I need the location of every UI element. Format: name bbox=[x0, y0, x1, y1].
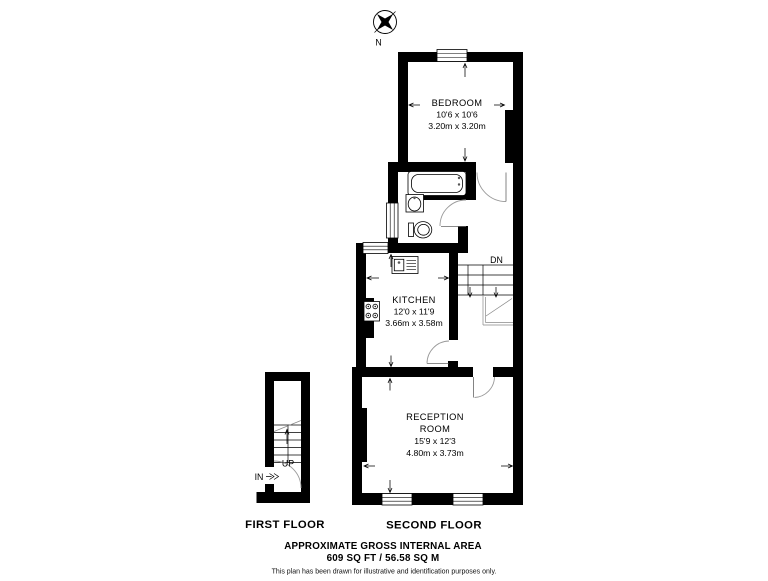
wall-segment bbox=[398, 52, 408, 172]
window bbox=[453, 494, 483, 506]
dimension-arrow bbox=[501, 464, 513, 468]
wall-segment bbox=[493, 367, 523, 377]
wall-segment bbox=[398, 162, 476, 172]
north-label: N bbox=[375, 38, 381, 48]
door-arc bbox=[474, 377, 495, 398]
floorplan-svg: N bbox=[0, 0, 768, 576]
bedroom-dim-metric: 3.20m x 3.20m bbox=[428, 121, 485, 131]
window bbox=[387, 203, 399, 238]
dimension-arrow bbox=[388, 480, 392, 493]
staircase-down-icon bbox=[458, 265, 513, 325]
window bbox=[382, 494, 412, 506]
wall-segment bbox=[352, 367, 473, 377]
wall-segment bbox=[265, 484, 274, 493]
dimension-arrow bbox=[463, 148, 467, 161]
floorplan-canvas: N bbox=[0, 0, 768, 576]
dimension-arrow bbox=[438, 276, 449, 280]
wall-segment bbox=[257, 492, 311, 503]
staircase-up-icon bbox=[274, 421, 301, 463]
dimension-arrow bbox=[389, 356, 393, 367]
dimension-arrow bbox=[364, 464, 375, 468]
area-value: 609 SQ FT / 56.58 SQ M bbox=[327, 553, 440, 564]
bathtub-icon bbox=[408, 172, 466, 196]
stairs-up-label: UP bbox=[282, 459, 294, 469]
dimension-arrow bbox=[494, 103, 505, 107]
reception-dim-metric: 4.80m x 3.73m bbox=[406, 448, 463, 458]
kitchen-sink-icon bbox=[392, 257, 418, 274]
area-heading: APPROXIMATE GROSS INTERNAL AREA bbox=[284, 541, 482, 552]
window bbox=[363, 243, 388, 254]
wall-segment bbox=[505, 110, 523, 163]
reception-label-line1: RECEPTION bbox=[406, 412, 464, 422]
bedroom-dim-imperial: 10'6 x 10'6 bbox=[436, 110, 478, 120]
second-floor-label: SECOND FLOOR bbox=[386, 520, 482, 532]
toilet-icon bbox=[409, 222, 432, 238]
wall-segment bbox=[352, 408, 367, 462]
wall-segment bbox=[352, 493, 523, 505]
kitchen-dim-metric: 3.66m x 3.58m bbox=[385, 318, 442, 328]
compass-icon: N bbox=[374, 11, 397, 48]
wall-segment bbox=[301, 372, 310, 503]
first-floor-label: FIRST FLOOR bbox=[245, 519, 325, 531]
stairs-down-label: DN bbox=[490, 255, 503, 265]
first-floor-labels: UP IN bbox=[255, 459, 295, 483]
wall-segment bbox=[449, 243, 458, 340]
bedroom-label: BEDROOM bbox=[432, 98, 483, 108]
first-floor-walls bbox=[257, 372, 311, 503]
hob-icon bbox=[364, 302, 380, 322]
entrance-label: IN bbox=[255, 472, 264, 482]
dimension-arrow bbox=[409, 103, 420, 107]
sink-icon bbox=[406, 195, 424, 213]
kitchen-dim-imperial: 12'0 x 11'9 bbox=[394, 307, 435, 317]
entrance-arrow-icon bbox=[266, 474, 279, 480]
kitchen-label: KITCHEN bbox=[392, 295, 436, 305]
reception-dim-imperial: 15'9 x 12'3 bbox=[414, 436, 456, 446]
door-arc bbox=[427, 341, 449, 364]
wall-segment bbox=[265, 372, 274, 467]
disclaimer: This plan has been drawn for illustrativ… bbox=[272, 569, 497, 576]
footer: FIRST FLOOR SECOND FLOOR APPROXIMATE GRO… bbox=[245, 519, 496, 576]
window bbox=[437, 50, 467, 62]
reception-label-line2: ROOM bbox=[420, 424, 451, 434]
dimension-arrow bbox=[388, 379, 392, 391]
dimension-arrow bbox=[463, 64, 467, 78]
dimension-arrow bbox=[367, 276, 379, 280]
door-arc bbox=[440, 200, 466, 227]
door-arc bbox=[477, 173, 506, 202]
